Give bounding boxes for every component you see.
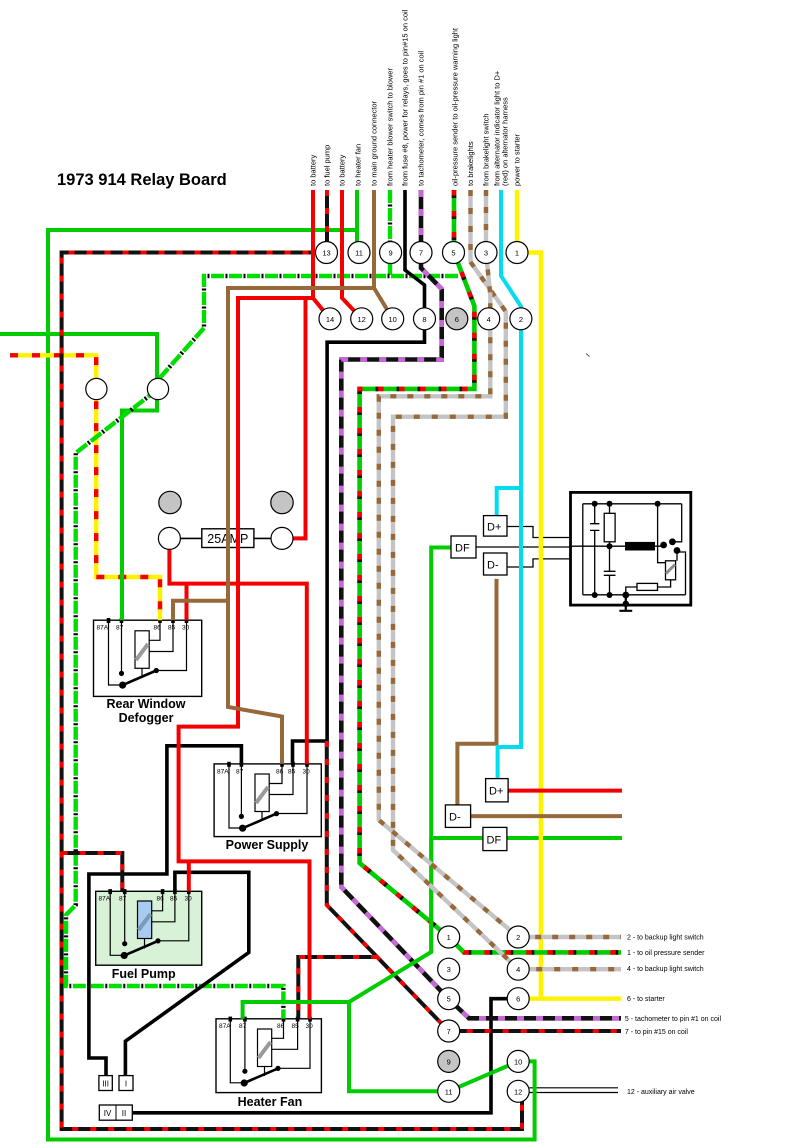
svg-text:1: 1 bbox=[515, 249, 519, 258]
svg-text:2: 2 bbox=[519, 315, 523, 324]
svg-text:D+: D+ bbox=[489, 786, 503, 798]
svg-text:5 - tachometer to pin #1 on co: 5 - tachometer to pin #1 on coil bbox=[625, 1016, 722, 1023]
svg-text:I: I bbox=[125, 1080, 127, 1089]
svg-text:87A: 87A bbox=[97, 625, 109, 632]
svg-text:DF: DF bbox=[455, 543, 470, 555]
svg-text:Heater Fan: Heater Fan bbox=[238, 1095, 303, 1109]
svg-text:DF: DF bbox=[487, 835, 502, 847]
svg-text:D+: D+ bbox=[487, 522, 501, 534]
svg-text:86: 86 bbox=[276, 768, 284, 775]
svg-text:from brakelight switch: from brakelight switch bbox=[482, 113, 491, 186]
svg-text:30: 30 bbox=[185, 896, 193, 903]
svg-text:III: III bbox=[102, 1080, 109, 1089]
svg-text:1: 1 bbox=[447, 933, 451, 942]
svg-text:86: 86 bbox=[154, 625, 162, 632]
svg-text:87A: 87A bbox=[217, 768, 229, 775]
svg-text:D-: D- bbox=[487, 560, 499, 572]
svg-text:(red) on alternator harness: (red) on alternator harness bbox=[501, 97, 510, 186]
svg-text:10: 10 bbox=[389, 315, 397, 324]
svg-text:3: 3 bbox=[447, 965, 451, 974]
svg-text:to brakelights: to brakelights bbox=[466, 141, 475, 186]
svg-text:9: 9 bbox=[447, 1057, 451, 1066]
svg-text:13: 13 bbox=[322, 249, 330, 258]
svg-text:D-: D- bbox=[449, 812, 461, 824]
svg-text:1 - to oil pressure sender: 1 - to oil pressure sender bbox=[627, 950, 705, 957]
svg-text:Defogger: Defogger bbox=[119, 711, 174, 725]
svg-text:to tachometer, comes from pin: to tachometer, comes from pin #1 on coil bbox=[417, 51, 426, 186]
svg-text:to battery: to battery bbox=[338, 154, 347, 186]
svg-text:87: 87 bbox=[236, 768, 244, 775]
svg-text:87: 87 bbox=[116, 625, 124, 632]
svg-text:9: 9 bbox=[389, 249, 393, 258]
svg-text:85: 85 bbox=[288, 768, 296, 775]
svg-text:7: 7 bbox=[447, 1027, 451, 1036]
svg-text:30: 30 bbox=[306, 1023, 314, 1030]
svg-text:86: 86 bbox=[157, 896, 165, 903]
svg-text:2: 2 bbox=[516, 933, 520, 942]
svg-text:6: 6 bbox=[516, 995, 520, 1004]
svg-text:IV: IV bbox=[104, 1109, 112, 1118]
svg-text:from fuse #8, power for relays: from fuse #8, power for relays, goes to … bbox=[401, 9, 410, 186]
svg-text:6 - to starter: 6 - to starter bbox=[627, 996, 665, 1003]
svg-text:10: 10 bbox=[514, 1057, 522, 1066]
svg-text:8: 8 bbox=[422, 315, 426, 324]
svg-text:from heater blower switch to b: from heater blower switch to blower bbox=[386, 68, 395, 186]
svg-text:87A: 87A bbox=[219, 1023, 231, 1030]
svg-text:12 - auxiliary air valve: 12 - auxiliary air valve bbox=[627, 1089, 695, 1096]
svg-text:14: 14 bbox=[326, 315, 334, 324]
svg-text:7: 7 bbox=[419, 249, 423, 258]
svg-text:85: 85 bbox=[170, 896, 178, 903]
svg-text:Power Supply: Power Supply bbox=[226, 838, 309, 852]
svg-text:11: 11 bbox=[355, 249, 363, 258]
svg-text:2 - to backup light switch: 2 - to backup light switch bbox=[627, 935, 704, 942]
svg-text:86: 86 bbox=[277, 1023, 285, 1030]
svg-text:87A: 87A bbox=[99, 896, 111, 903]
svg-text:7 - to pin #15 on coil: 7 - to pin #15 on coil bbox=[625, 1029, 688, 1036]
svg-text:85: 85 bbox=[168, 625, 176, 632]
svg-text:3: 3 bbox=[484, 249, 488, 258]
svg-text:to battery: to battery bbox=[309, 154, 318, 186]
svg-text:to main ground connector: to main ground connector bbox=[370, 100, 379, 186]
svg-text:Rear Window: Rear Window bbox=[106, 697, 185, 711]
svg-text:12: 12 bbox=[514, 1087, 522, 1096]
svg-text:to fuel pump: to fuel pump bbox=[323, 145, 332, 186]
svg-text:85: 85 bbox=[292, 1023, 300, 1030]
svg-text:6: 6 bbox=[455, 315, 459, 324]
svg-text:5: 5 bbox=[447, 995, 451, 1004]
svg-text:30: 30 bbox=[303, 768, 311, 775]
svg-text:II: II bbox=[122, 1109, 126, 1118]
svg-text:4: 4 bbox=[516, 965, 520, 974]
svg-text:1973 914 Relay Board: 1973 914 Relay Board bbox=[57, 171, 227, 189]
svg-text:to heater fan: to heater fan bbox=[354, 144, 363, 186]
svg-text:87: 87 bbox=[239, 1023, 247, 1030]
svg-text:12: 12 bbox=[358, 315, 366, 324]
svg-text:30: 30 bbox=[182, 625, 190, 632]
svg-text:oil-pressure sender to oil-pre: oil-pressure sender to oil-pressure warn… bbox=[451, 27, 460, 186]
svg-text:11: 11 bbox=[445, 1087, 453, 1096]
svg-text:4: 4 bbox=[487, 315, 491, 324]
svg-text:5: 5 bbox=[451, 249, 455, 258]
svg-text:4 - to backup light switch: 4 - to backup light switch bbox=[627, 966, 704, 973]
svg-text:87: 87 bbox=[119, 896, 127, 903]
svg-text:Fuel Pump: Fuel Pump bbox=[112, 967, 176, 981]
svg-text:power to starter: power to starter bbox=[513, 133, 522, 186]
